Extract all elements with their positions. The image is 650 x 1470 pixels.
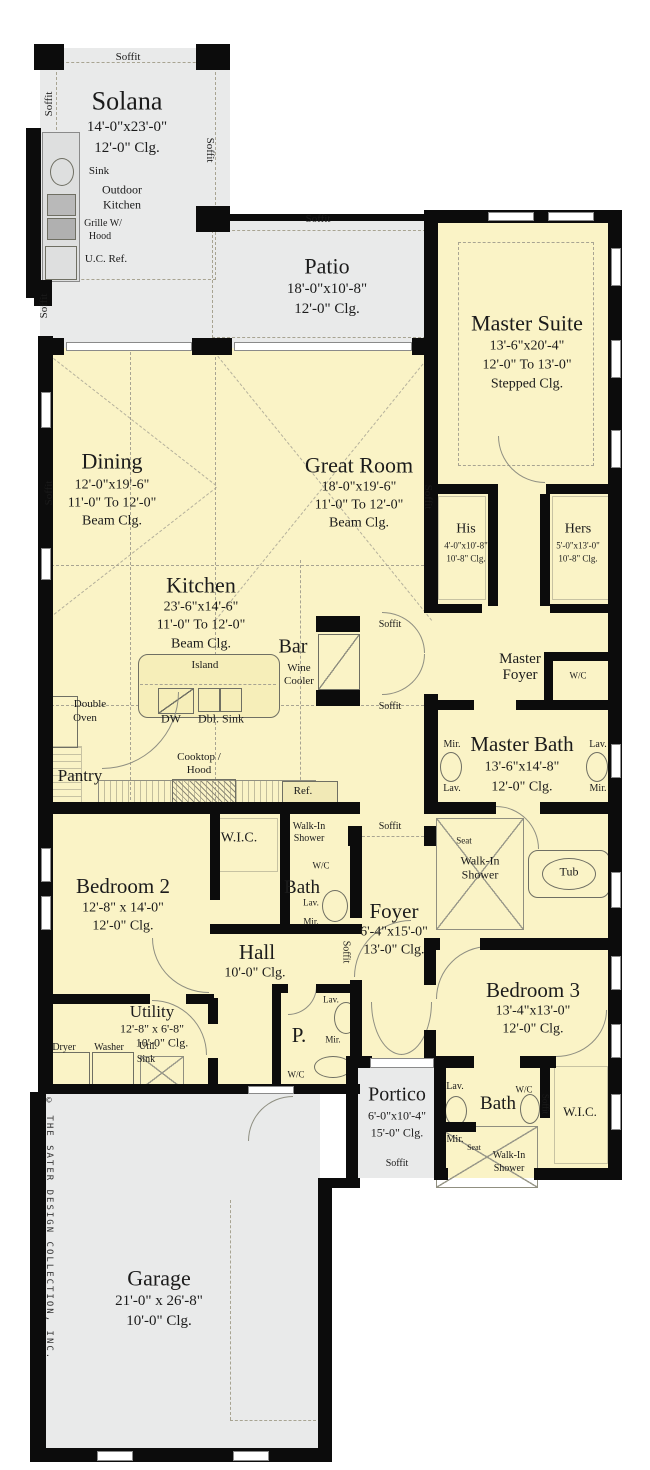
soffit-label: Soffit bbox=[540, 1094, 549, 1114]
tub-label: Tub bbox=[560, 866, 579, 879]
pantry-label: Pantry bbox=[58, 767, 102, 785]
room-clg: 11'-0" To 12'-0" bbox=[68, 497, 157, 512]
double-oven-label: Oven bbox=[73, 713, 97, 725]
room-clg: 12'-0" Clg. bbox=[502, 1023, 563, 1038]
mir-label: Mir. bbox=[325, 1035, 340, 1044]
room-dims: 18'-0"x19'-6" bbox=[322, 481, 397, 496]
bar-label: Bar bbox=[279, 637, 308, 658]
wall-post bbox=[196, 44, 230, 70]
garage-door bbox=[233, 1451, 269, 1461]
wall bbox=[434, 1060, 446, 1168]
window bbox=[611, 430, 621, 468]
room-title: W.I.C. bbox=[563, 1105, 597, 1119]
room-dims: 12'-8" x 6'-8" bbox=[120, 1023, 184, 1036]
wine-cooler-label: Cooler bbox=[284, 676, 314, 688]
lav-label: Lav. bbox=[323, 995, 339, 1004]
soffit-label: Soffit bbox=[386, 1159, 409, 1170]
uc-ref-label: U.C. Ref. bbox=[85, 254, 127, 266]
grille bbox=[47, 218, 76, 240]
wall bbox=[208, 998, 218, 1024]
room-clg: 11'-0" To 12'-0" bbox=[315, 499, 404, 514]
wall bbox=[550, 604, 622, 613]
room-clg: 13'-0" Clg. bbox=[363, 944, 424, 959]
foyer-soffit-dash bbox=[362, 836, 424, 837]
wall bbox=[534, 1168, 622, 1180]
room-dims: 13'-6"x20'-4" bbox=[490, 340, 565, 355]
room-clg: 10'-8" Clg. bbox=[446, 554, 485, 563]
walk-in-shower-label: Walk-In bbox=[493, 1151, 526, 1162]
garage-door-opening bbox=[248, 1086, 294, 1094]
soffit-label: Soffit bbox=[421, 485, 433, 510]
wall bbox=[30, 1448, 332, 1462]
room-title: Patio bbox=[304, 254, 349, 277]
wall bbox=[318, 1178, 332, 1462]
room-dims: 5'-0"x13'-0" bbox=[556, 541, 600, 550]
room-title: Hers bbox=[565, 523, 591, 538]
ref-label: Ref. bbox=[294, 786, 313, 798]
window bbox=[548, 212, 594, 221]
dryer-label: Dryer bbox=[52, 1043, 75, 1054]
room-title: Dining bbox=[81, 449, 142, 472]
soffit-label: Soffit bbox=[44, 481, 56, 506]
room-clg: 12'-0" Clg. bbox=[294, 302, 360, 318]
master-lav-left bbox=[440, 752, 462, 782]
room-title: Bath bbox=[284, 878, 320, 898]
garage-dash bbox=[230, 1420, 316, 1421]
walk-in-shower-label: Shower bbox=[294, 834, 325, 845]
wc-label: W/C bbox=[570, 671, 587, 680]
double-sink bbox=[220, 688, 242, 712]
lav-label: Lav. bbox=[589, 740, 606, 751]
room-clg: 10'-0" Clg. bbox=[126, 1314, 192, 1330]
wine-cooler-label: Wine bbox=[287, 663, 310, 675]
wall bbox=[424, 694, 438, 812]
wall bbox=[318, 1178, 360, 1188]
room-title: Master bbox=[499, 652, 541, 668]
soffit-block bbox=[316, 616, 360, 632]
lav-label: Lav. bbox=[303, 898, 319, 907]
wall bbox=[38, 336, 53, 1092]
walk-in-shower-label: Walk-In bbox=[460, 855, 499, 868]
room-title: Great Room bbox=[305, 453, 413, 476]
walk-in-shower-label: Walk-In bbox=[293, 822, 326, 833]
garage-door bbox=[97, 1451, 133, 1461]
wall bbox=[540, 802, 622, 814]
slider-window bbox=[66, 342, 192, 351]
wall bbox=[280, 924, 362, 934]
util-sink-label: Util. bbox=[139, 1042, 157, 1053]
wc-label: W/C bbox=[288, 1070, 305, 1079]
lav-label: Lav. bbox=[446, 1082, 463, 1093]
mir-label: Mir. bbox=[447, 1135, 464, 1146]
wall bbox=[520, 1056, 556, 1068]
soffit-label: Soffit bbox=[379, 822, 402, 833]
room-dims: 13'-6"x14'-8" bbox=[485, 761, 560, 776]
wall bbox=[434, 1168, 448, 1180]
room-title: Master Bath bbox=[470, 733, 573, 755]
washer-label: Washer bbox=[94, 1043, 124, 1054]
wall-post bbox=[38, 338, 64, 355]
front-door-opening bbox=[370, 1058, 434, 1068]
room-clg: 15'-0" Clg. bbox=[371, 1127, 423, 1140]
window bbox=[488, 212, 534, 221]
room-title: Portico bbox=[368, 1085, 426, 1106]
wall bbox=[316, 984, 362, 993]
wall-post bbox=[424, 826, 436, 846]
wall bbox=[480, 938, 622, 950]
master-lav-right bbox=[586, 752, 608, 782]
wc-label: W/C bbox=[516, 1085, 533, 1094]
soffit-block bbox=[316, 690, 360, 706]
soffit-label: Soffit bbox=[306, 214, 331, 226]
wine-cooler-cabinet bbox=[318, 634, 360, 690]
soffit-label: Soffit bbox=[39, 294, 51, 319]
room-clg: Beam Clg. bbox=[329, 517, 389, 532]
window bbox=[41, 392, 51, 428]
room-title: W.I.C. bbox=[221, 832, 257, 847]
cooktop bbox=[172, 779, 236, 804]
room-title: Bedroom 3 bbox=[486, 979, 580, 1001]
soffit-label: Soffit bbox=[44, 92, 56, 117]
uc-refrigerator bbox=[45, 246, 77, 280]
util-sink-label: Sink bbox=[137, 1055, 155, 1066]
room-title: Hall bbox=[239, 941, 275, 963]
room-clg: 12'-0" To 13'-0" bbox=[482, 359, 571, 374]
wall bbox=[280, 812, 290, 934]
room-dims: 6'-0"x10'-4" bbox=[368, 1110, 426, 1123]
bath2-lav bbox=[322, 890, 348, 922]
dw-label: DW bbox=[161, 713, 181, 726]
room-title: Garage bbox=[127, 1266, 191, 1289]
soffit-label: Soffit bbox=[203, 138, 215, 163]
room-title: Foyer bbox=[370, 900, 419, 922]
mir-label: Mir. bbox=[590, 784, 607, 795]
wall bbox=[546, 484, 622, 494]
room-dims: 23'-6"x14'-6" bbox=[164, 601, 239, 616]
wall bbox=[544, 652, 622, 661]
window bbox=[41, 848, 51, 882]
bath3-toilet bbox=[520, 1094, 540, 1124]
wall bbox=[516, 700, 622, 710]
double-oven-label: Double bbox=[74, 699, 106, 711]
room-dims: 13'-4"x13'-0" bbox=[496, 1005, 571, 1020]
wall bbox=[488, 494, 498, 606]
garage-dash bbox=[230, 1200, 231, 1420]
room-dims: 4'-0"x10'-8" bbox=[444, 541, 488, 550]
soffit-label: Soffit bbox=[379, 620, 402, 631]
room-clg: 11'-0" To 12'-0" bbox=[157, 619, 246, 634]
room-dims: 21'-0" x 26'-8" bbox=[115, 1294, 203, 1310]
copyright-text: © THE SATER DESIGN COLLECTION, INC. bbox=[44, 1096, 54, 1396]
grille-label: Grille W/ bbox=[84, 219, 122, 230]
outdoor-sink bbox=[50, 158, 74, 186]
soffit-label: Soffit bbox=[379, 702, 402, 713]
window bbox=[611, 1094, 621, 1130]
room-title: His bbox=[456, 523, 475, 538]
outdoor-kitchen-label: Outdoor bbox=[102, 184, 142, 197]
wall-post bbox=[196, 206, 230, 232]
soffit-label: Soffit bbox=[116, 52, 141, 64]
wall bbox=[350, 826, 362, 918]
wc-label: W/C bbox=[313, 861, 330, 870]
room-title: P. bbox=[292, 1024, 307, 1046]
walk-in-shower-label: Shower bbox=[494, 1164, 525, 1175]
grille bbox=[47, 194, 76, 216]
dbl-sink-label: Dbl. Sink bbox=[198, 713, 244, 726]
room-dims: 12'-0"x19'-6" bbox=[75, 479, 150, 494]
wall bbox=[424, 210, 438, 488]
window bbox=[611, 340, 621, 378]
wall bbox=[210, 812, 220, 900]
column-line bbox=[46, 565, 424, 566]
outdoor-kitchen-label: Kitchen bbox=[103, 199, 141, 212]
window bbox=[611, 872, 621, 908]
room-clg: 10'-8" Clg. bbox=[558, 554, 597, 563]
room-clg: 10'-0" Clg. bbox=[224, 967, 285, 982]
room-clg: Beam Clg. bbox=[171, 638, 231, 653]
window bbox=[611, 248, 621, 286]
room-title: Bedroom 2 bbox=[76, 875, 170, 897]
double-sink bbox=[198, 688, 220, 712]
seat-label: Seat bbox=[456, 836, 472, 845]
mir-label: Mir. bbox=[303, 917, 318, 926]
room-title: Foyer bbox=[503, 668, 538, 684]
soffit-label: Soffit bbox=[340, 941, 351, 964]
cooktop-label: Hood bbox=[187, 765, 211, 777]
window bbox=[611, 1024, 621, 1058]
island-label: Island bbox=[192, 660, 219, 672]
window bbox=[41, 548, 51, 580]
walk-in-shower-label: Shower bbox=[462, 869, 499, 882]
room-title: Solana bbox=[92, 87, 163, 114]
sink-label: Sink bbox=[89, 166, 109, 178]
wall bbox=[446, 1056, 474, 1068]
island-line bbox=[140, 684, 276, 685]
mir-label: Mir. bbox=[444, 740, 461, 751]
room-title: Kitchen bbox=[166, 573, 236, 596]
wall-post bbox=[34, 44, 64, 70]
wall bbox=[272, 984, 281, 1088]
room-title: Master Suite bbox=[471, 311, 583, 334]
grille-label: Hood bbox=[89, 232, 111, 243]
wall-post bbox=[192, 338, 232, 355]
room-title: Bath bbox=[480, 1094, 516, 1114]
room-dims: 14'-0"x23'-0" bbox=[87, 120, 167, 136]
room-clg: Beam Clg. bbox=[82, 515, 142, 530]
wall bbox=[38, 1084, 360, 1094]
wall bbox=[540, 494, 550, 606]
wall bbox=[346, 1060, 358, 1164]
window bbox=[41, 896, 51, 930]
cooktop-label: Cooktop / bbox=[177, 752, 221, 764]
room-dims: 12'-8" x 14'-0" bbox=[82, 902, 164, 917]
wall bbox=[424, 938, 436, 985]
room-dims: 6'-4"x15'-0" bbox=[360, 926, 428, 941]
wall bbox=[434, 1122, 476, 1132]
room-clg: 12'-0" Clg. bbox=[92, 920, 153, 935]
room-clg: 12'-0" Clg. bbox=[491, 781, 552, 796]
window bbox=[611, 956, 621, 990]
floor-plan: Solana 14'-0"x23'-0" 12'-0" Clg. Patio 1… bbox=[0, 0, 650, 1470]
wall bbox=[424, 802, 496, 814]
wall bbox=[26, 128, 41, 298]
room-clg: Stepped Clg. bbox=[491, 378, 563, 393]
slider-window bbox=[234, 342, 412, 351]
window bbox=[611, 744, 621, 778]
room-clg: 12'-0" Clg. bbox=[94, 141, 160, 157]
lav-label: Lav. bbox=[443, 784, 460, 795]
room-title: Utility bbox=[130, 1003, 174, 1021]
room-dims: 18'-0"x10'-8" bbox=[287, 282, 367, 298]
seat-label: Seat bbox=[467, 1144, 481, 1152]
wall bbox=[210, 924, 288, 934]
wall bbox=[38, 802, 360, 814]
